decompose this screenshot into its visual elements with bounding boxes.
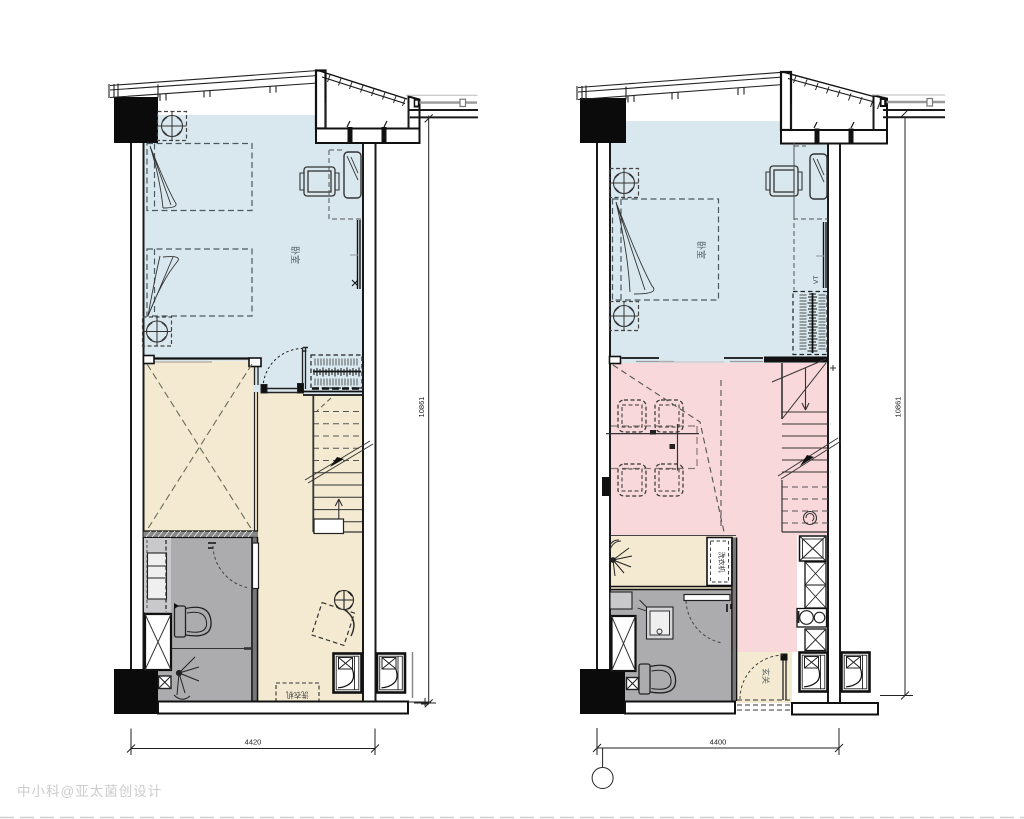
svg-text:4420: 4420	[245, 738, 262, 747]
svg-text:10861: 10861	[417, 397, 426, 418]
svg-text:卧室: 卧室	[696, 241, 707, 259]
svg-text:洗衣机: 洗衣机	[718, 552, 727, 573]
svg-text:中小科@亚太菌创设计: 中小科@亚太菌创设计	[17, 784, 162, 799]
svg-text:玄关: 玄关	[761, 668, 771, 684]
svg-text:10861: 10861	[894, 397, 903, 418]
svg-text:洗衣机: 洗衣机	[286, 691, 309, 701]
svg-text:VT: VT	[813, 276, 820, 284]
svg-text:卧室: 卧室	[290, 246, 301, 264]
svg-text:4400: 4400	[710, 738, 727, 747]
